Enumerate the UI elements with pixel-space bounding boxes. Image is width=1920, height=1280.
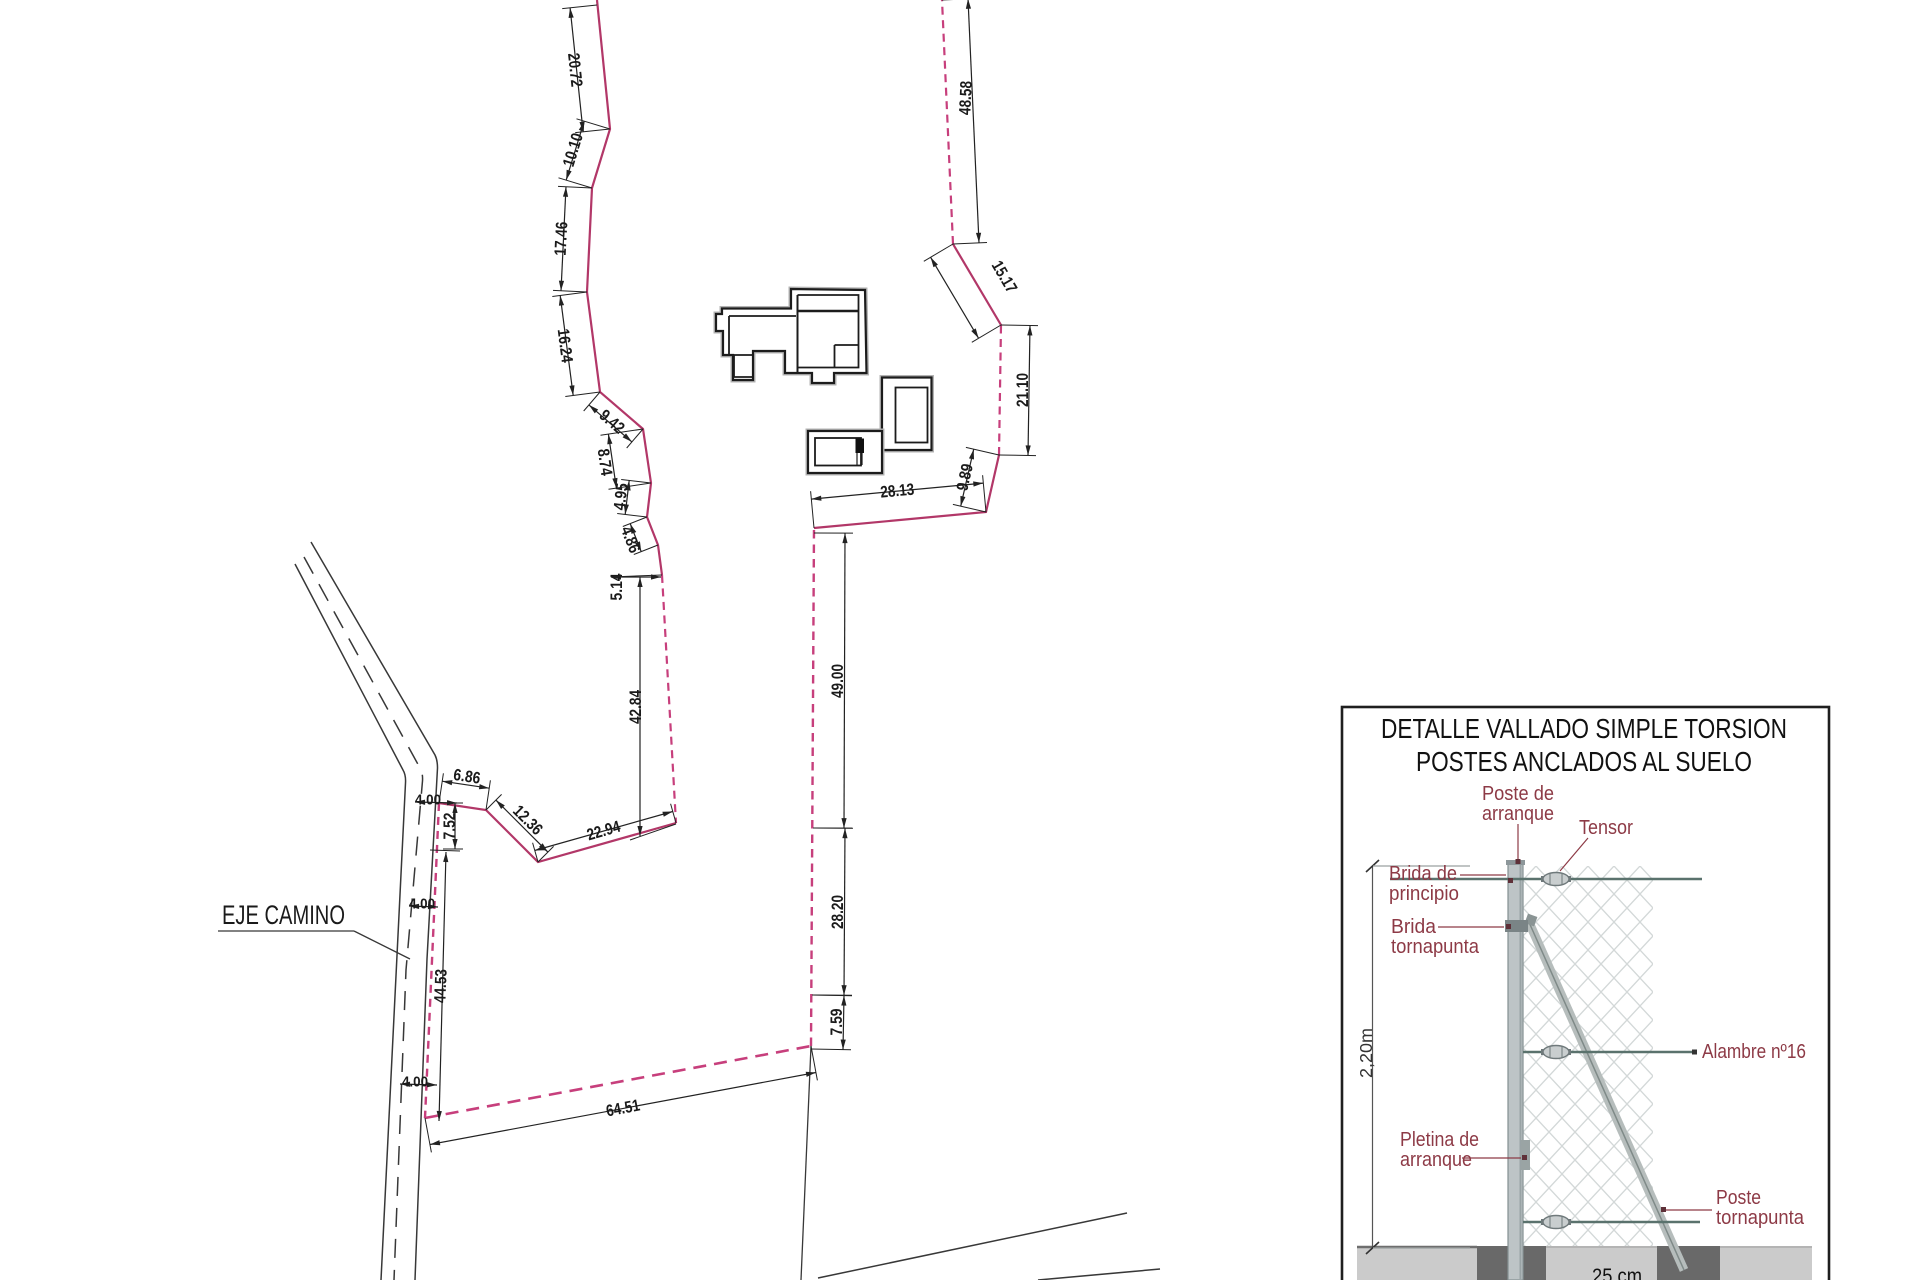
- svg-text:9.89: 9.89: [953, 462, 977, 492]
- svg-text:4.00: 4.00: [409, 896, 435, 913]
- svg-text:4.00: 4.00: [402, 1074, 428, 1091]
- svg-text:DETALLE VALLADO SIMPLE TORSION: DETALLE VALLADO SIMPLE TORSION: [1381, 713, 1787, 744]
- svg-text:64.51: 64.51: [605, 1097, 642, 1121]
- svg-text:Alambre nº16: Alambre nº16: [1702, 1041, 1806, 1063]
- svg-text:7.52: 7.52: [441, 813, 459, 840]
- svg-text:EJE CAMINO: EJE CAMINO: [222, 900, 345, 930]
- svg-text:Tensor: Tensor: [1579, 817, 1633, 839]
- svg-text:15.17: 15.17: [988, 258, 1021, 296]
- svg-text:tornapunta: tornapunta: [1391, 936, 1480, 958]
- svg-text:Poste de: Poste de: [1482, 783, 1554, 805]
- svg-text:44.53: 44.53: [431, 969, 450, 1004]
- svg-text:7.59: 7.59: [828, 1009, 846, 1036]
- svg-text:20.72: 20.72: [564, 52, 585, 88]
- svg-text:tornapunta: tornapunta: [1716, 1207, 1805, 1229]
- svg-text:POSTES ANCLADOS AL SUELO: POSTES ANCLADOS AL SUELO: [1416, 746, 1752, 777]
- svg-text:arranque: arranque: [1400, 1149, 1472, 1171]
- svg-text:8.74: 8.74: [594, 448, 616, 478]
- svg-text:25 cm: 25 cm: [1592, 1265, 1642, 1280]
- svg-text:4.00: 4.00: [415, 792, 441, 809]
- svg-text:42.84: 42.84: [627, 689, 645, 724]
- svg-text:principio: principio: [1389, 883, 1459, 905]
- svg-text:21.10: 21.10: [1014, 373, 1032, 407]
- svg-text:16.24: 16.24: [554, 328, 576, 365]
- svg-text:12.36: 12.36: [509, 802, 546, 839]
- svg-text:28.13: 28.13: [880, 481, 916, 502]
- svg-text:6.86: 6.86: [452, 766, 481, 788]
- svg-text:Poste: Poste: [1716, 1187, 1761, 1209]
- svg-text:Brida: Brida: [1391, 916, 1437, 938]
- svg-text:4.86: 4.86: [617, 524, 644, 556]
- svg-text:28.20: 28.20: [829, 895, 847, 929]
- svg-text:4.95: 4.95: [611, 482, 632, 511]
- svg-text:48.58: 48.58: [956, 81, 976, 116]
- svg-text:arranque: arranque: [1482, 803, 1554, 825]
- svg-text:Brida de: Brida de: [1389, 863, 1457, 885]
- svg-text:17.46: 17.46: [552, 221, 572, 256]
- svg-text:2,20m: 2,20m: [1356, 1028, 1376, 1078]
- svg-text:Pletina de: Pletina de: [1400, 1129, 1479, 1151]
- svg-text:49.00: 49.00: [829, 664, 847, 698]
- svg-text:10.10: 10.10: [560, 131, 587, 169]
